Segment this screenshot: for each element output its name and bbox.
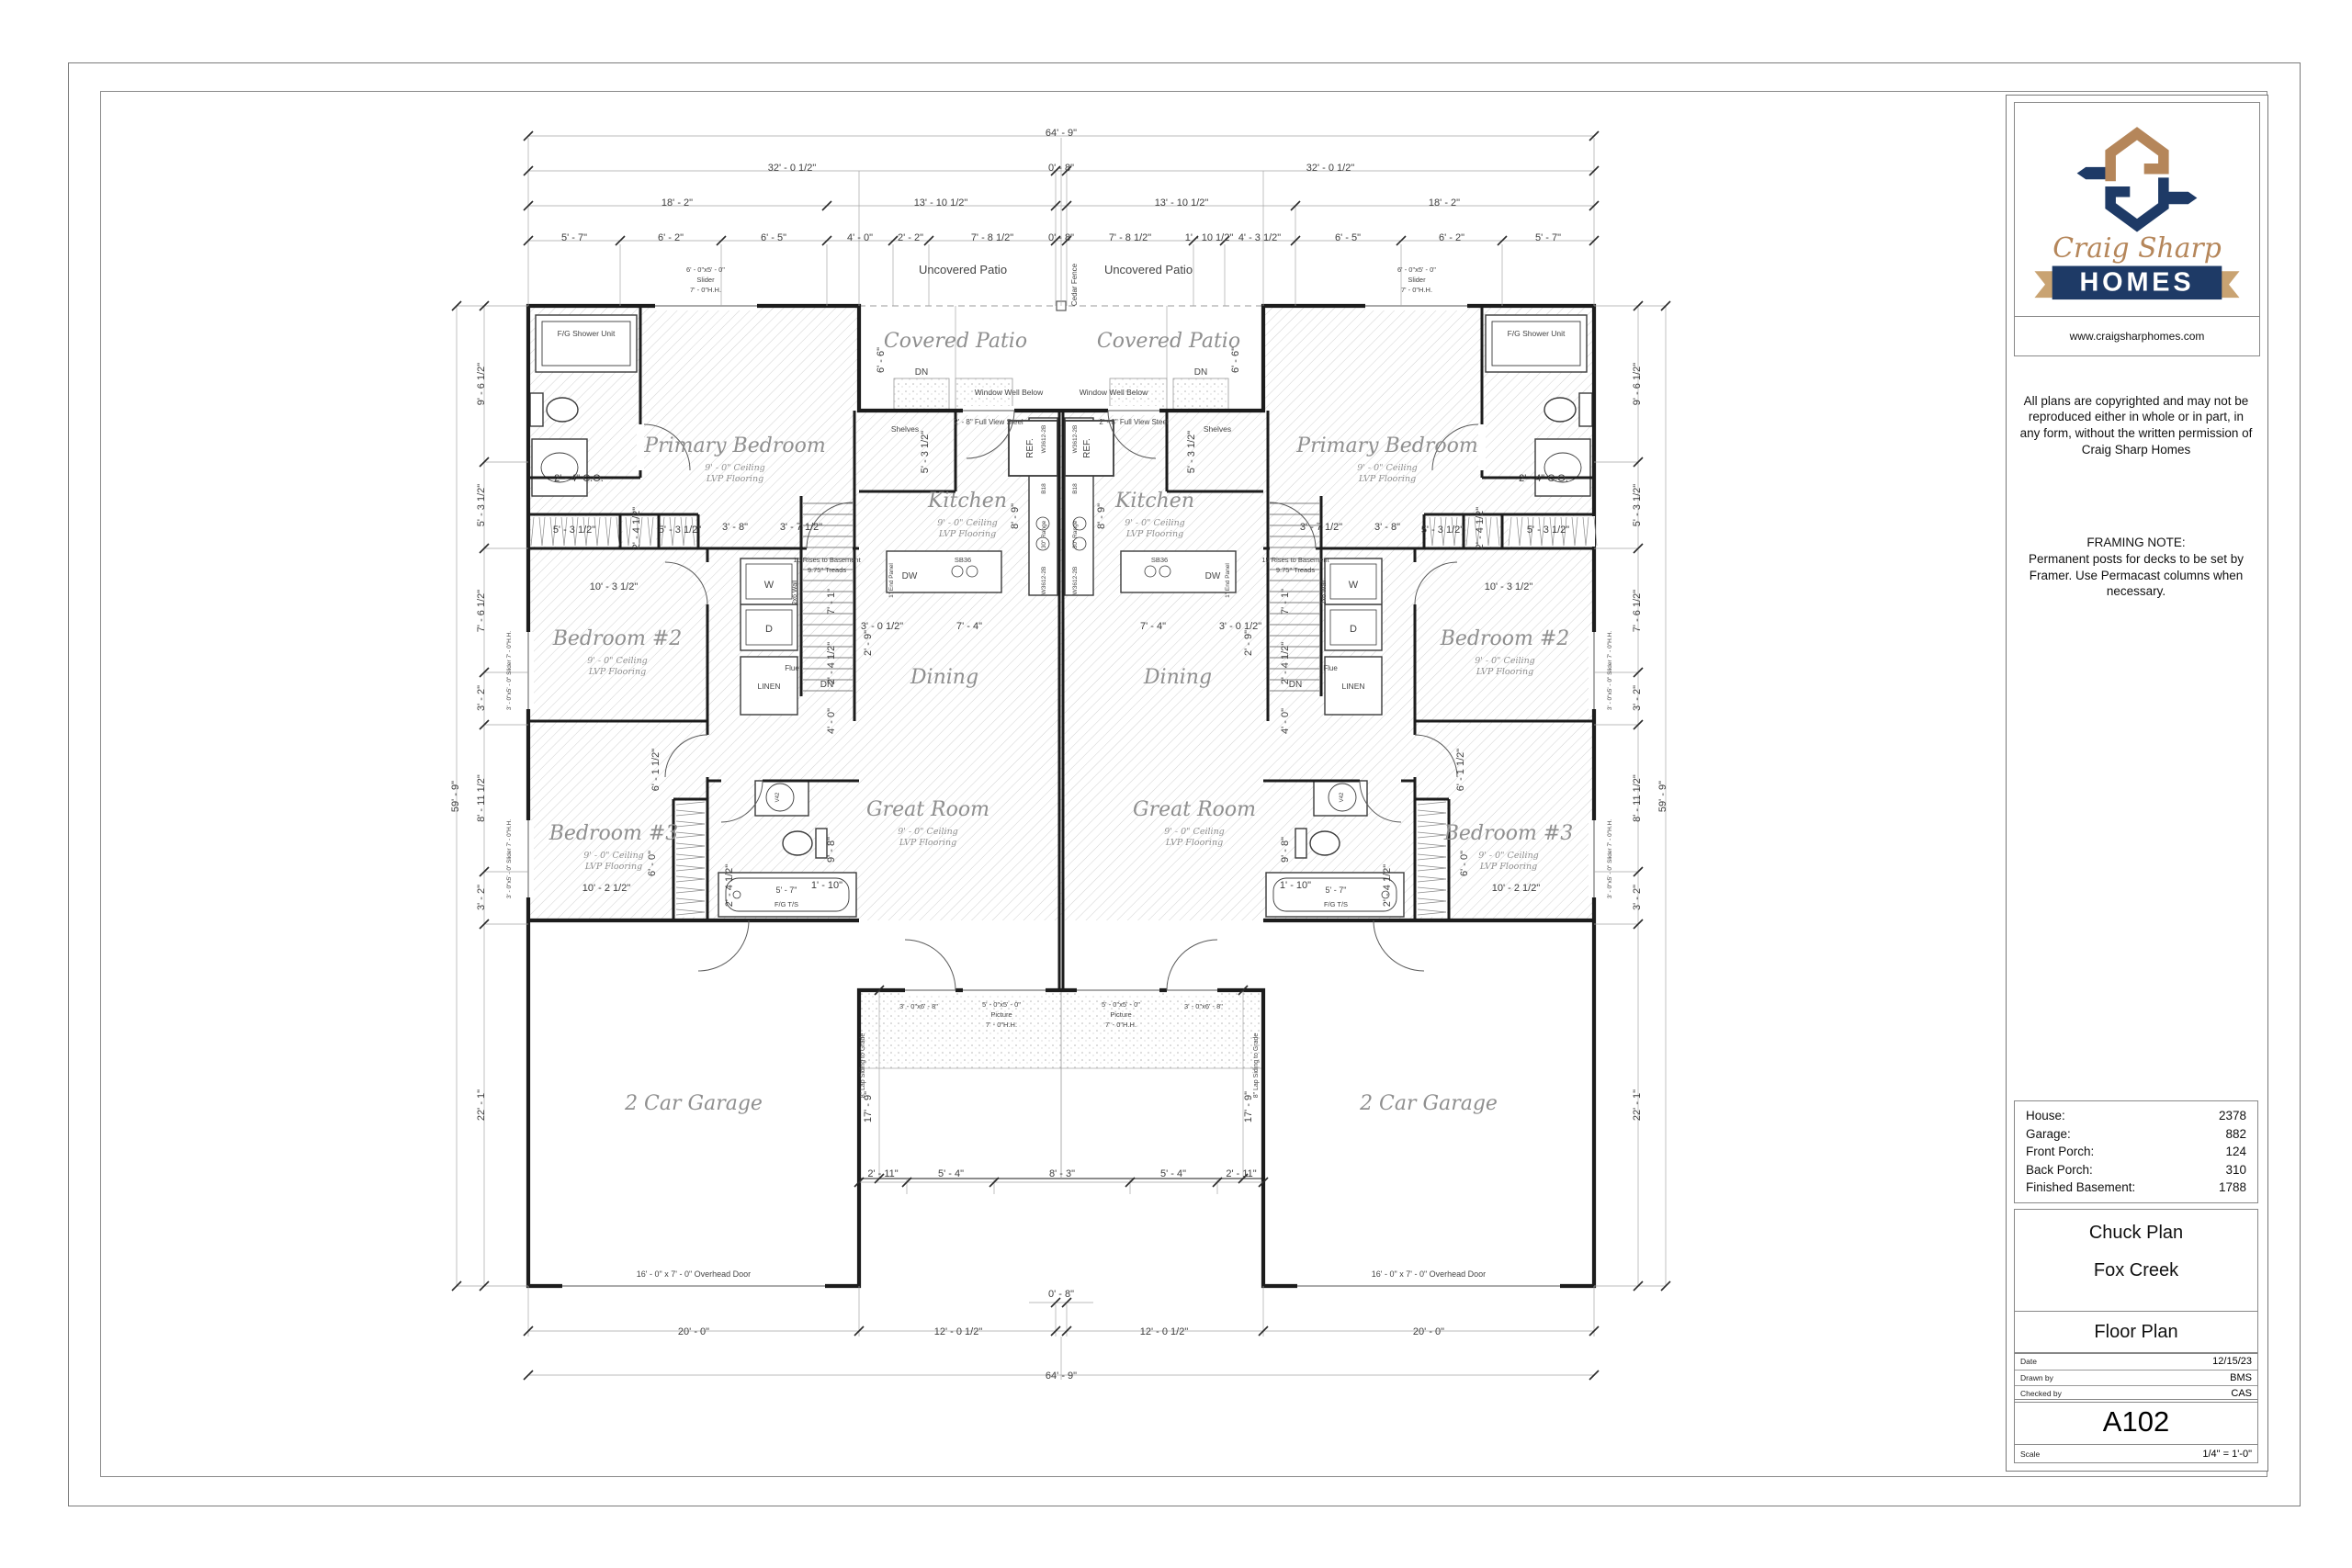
website-url: www.craigsharphomes.com: [2015, 316, 2259, 355]
room-sub-label: LVP Flooring: [588, 667, 646, 677]
room-label: 2 Car Garage: [624, 1092, 763, 1115]
note-label: LINEN: [757, 682, 780, 691]
dim-label: 7' - 1": [1280, 589, 1291, 615]
dim-label: 5' - 3 1/2": [920, 431, 931, 473]
area-label: Garage:: [2026, 1125, 2071, 1144]
note-label: 1" End Panel: [1225, 563, 1231, 598]
note-label: 8" Lap Siding to Grade: [1253, 1033, 1260, 1099]
dim-label: 4' - 3 1/2": [1238, 232, 1281, 243]
area-value: 1788: [2219, 1179, 2246, 1197]
dim-label: 3' - 7 1/2": [1300, 522, 1342, 533]
dim-label: 3' - 2": [476, 685, 487, 711]
dim-label: 1' - 10": [811, 880, 842, 891]
dim-label: 5' - 4": [1160, 1168, 1186, 1179]
note-label: 9.75" Treads: [808, 566, 847, 574]
dim-label: 8' - 9": [1096, 503, 1107, 529]
dim-label: 2' - 4 1/2": [1280, 642, 1291, 684]
dim-label: 4' - 0": [1280, 708, 1291, 734]
note-label: Cedar Fence: [1070, 263, 1079, 306]
dim-label: 2' - 4 1/2": [631, 507, 642, 549]
note-label: 2x6 Wall: [792, 580, 798, 604]
dim-label: 3' - 2": [1632, 885, 1643, 910]
logo-chevron: [2110, 177, 2164, 225]
room-sub-label: 9' - 0" Ceiling: [1475, 656, 1535, 666]
note-label: 9.75" Treads: [1276, 566, 1316, 574]
note-label: 7' - 0"H.H.: [1401, 286, 1432, 294]
dim-label: 2' - 4 1/2": [724, 864, 735, 907]
note-label: Window Well Below: [975, 388, 1044, 397]
area-value: 2378: [2219, 1107, 2246, 1125]
dim-label: 2' - 2": [898, 232, 923, 243]
note-label: 8" Lap Siding to Grade: [860, 1033, 866, 1099]
note-label: Picture: [1110, 1010, 1131, 1019]
note-label: 2x6 Wall: [1321, 580, 1328, 604]
note-label: V42: [775, 792, 781, 802]
note-label: W: [1349, 580, 1359, 591]
room-label: Covered Patio: [1097, 330, 1240, 353]
note-label: 6' - 0"x5' - 0": [686, 265, 725, 274]
dim-label: 9' - 6 1/2": [1632, 363, 1643, 405]
dim-label: 4' - 0": [826, 708, 837, 734]
dim-label: 5' - 3 1/2": [1186, 431, 1197, 473]
note-label: LINEN: [1341, 682, 1364, 691]
note-label: 5' - 7": [776, 886, 797, 895]
note-label: 5' - 7": [1326, 886, 1347, 895]
window-wells: [894, 378, 1228, 411]
note-label: F/G T/S: [775, 900, 798, 908]
dim-label: 5' - 3 1/2": [553, 525, 595, 536]
dim-label: 2' - 4 1/2": [1382, 864, 1393, 907]
room-sub-label: 9' - 0" Ceiling: [587, 656, 648, 666]
note-label: 3' - 0"x5' - 0" Slider 7' - 0"H.H.: [506, 631, 513, 710]
scale-row: Scale 1/4" = 1'-0": [2014, 1444, 2258, 1463]
note-label: DN: [915, 367, 928, 378]
dim-label: 3' - 8": [1374, 522, 1400, 533]
room-sub-label: LVP Flooring: [1165, 838, 1223, 848]
room-sub-label: LVP Flooring: [899, 838, 956, 848]
note-label: F/G Shower Unit: [558, 329, 616, 338]
meta-label: Checked by: [2020, 1389, 2062, 1398]
area-label: Finished Basement:: [2026, 1179, 2135, 1197]
note-label: DW: [1205, 571, 1221, 581]
note-label: DN: [1194, 367, 1207, 378]
room-label: Bedroom #3: [548, 822, 679, 845]
note-label: W3612-2B: [1072, 567, 1079, 595]
dim-label: 2' - 4" C.O.: [554, 473, 604, 484]
area-label: Front Porch:: [2026, 1143, 2094, 1161]
room-sub-label: 9' - 0" Ceiling: [583, 851, 644, 861]
area-value: 310: [2225, 1161, 2246, 1179]
dim-label: 3' - 2": [1632, 685, 1643, 711]
dim-label: 22' - 1": [476, 1089, 487, 1121]
note-label: 3' - 0"x6' - 8": [1184, 1002, 1223, 1010]
area-summary-table: House:2378Garage:882Front Porch:124Back …: [2014, 1100, 2258, 1203]
dim-label: 9' - 8": [826, 837, 837, 863]
scale-label: Scale: [2020, 1450, 2040, 1459]
dim-label: 2' - 9": [1243, 630, 1254, 656]
dim-label: 7' - 4": [1140, 621, 1166, 632]
note-label: Slider: [1408, 276, 1426, 284]
area-value: 124: [2225, 1143, 2246, 1161]
dim-label: 6' - 5": [1335, 232, 1361, 243]
room-label: Kitchen: [927, 490, 1007, 513]
dim-label: 6' - 0": [1459, 851, 1470, 876]
note-label: W: [764, 580, 775, 591]
scale-value: 1/4" = 1'-0": [2202, 1449, 2252, 1460]
dim-label: 7' - 6 1/2": [1632, 590, 1643, 632]
dim-label: 0' - 8": [1048, 1289, 1074, 1300]
dim-label: 2' - 4 1/2": [826, 642, 837, 684]
note-label: 6' - 0"x5' - 0": [1397, 265, 1436, 274]
note-label: Picture: [990, 1010, 1012, 1019]
note-label: Uncovered Patio: [919, 263, 1007, 276]
area-row: Garage:882: [2015, 1125, 2257, 1144]
dim-label: 7' - 8 1/2": [971, 232, 1013, 243]
note-label: 2' - 8" Full View Steel: [1099, 418, 1169, 426]
dim-label: 8' - 3": [1049, 1168, 1075, 1179]
dim-label: 6' - 1 1/2": [1455, 749, 1466, 791]
dim-label: 0' - 8": [1048, 163, 1074, 174]
area-row: Back Porch:310: [2015, 1161, 2257, 1179]
room-sub-label: LVP Flooring: [1358, 474, 1416, 484]
note-label: 7' - 0"H.H.: [690, 286, 721, 294]
dim-label: 1' - 10 1/2": [1185, 232, 1234, 243]
dim-label: 5' - 3 1/2": [659, 525, 701, 536]
room-sub-label: LVP Flooring: [1125, 529, 1183, 539]
note-label: 3' - 0"x5' - 0" Slider 7' - 0"H.H.: [1607, 631, 1613, 710]
dim-label: 6' - 5": [761, 232, 786, 243]
note-label: Flue: [1323, 664, 1338, 672]
drawing-sheet: 64' - 9"32' - 0 1/2"0' - 8"32' - 0 1/2"1…: [0, 0, 2352, 1568]
meta-value: 12/15/23: [2212, 1356, 2252, 1367]
dim-label: 32' - 0 1/2": [1306, 163, 1355, 174]
room-sub-label: 9' - 0" Ceiling: [937, 518, 998, 528]
floor-plan-drawing: 64' - 9"32' - 0 1/2"0' - 8"32' - 0 1/2"1…: [0, 0, 2352, 1568]
note-label: DN: [820, 680, 833, 690]
dim-label: 18' - 2": [661, 197, 693, 209]
dim-label: 20' - 0": [678, 1326, 709, 1337]
area-label: Back Porch:: [2026, 1161, 2093, 1179]
room-sub-label: LVP Flooring: [584, 862, 642, 872]
dim-label: 64' - 9": [1046, 1371, 1077, 1382]
craig-sharp-logo-graphic: Craig Sharp HOMES: [2022, 108, 2252, 310]
dim-label: 5' - 3 1/2": [476, 484, 487, 526]
note-label: 16' - 0" x 7' - 0" Overhead Door: [1372, 1269, 1486, 1279]
dim-label: 5' - 4": [938, 1168, 964, 1179]
framing-note-title: FRAMING NOTE:: [2086, 536, 2185, 549]
framing-note: FRAMING NOTE: Permanent posts for decks …: [2019, 535, 2253, 600]
dim-label: 12' - 0 1/2": [934, 1326, 983, 1337]
dim-label: 3' - 8": [722, 522, 748, 533]
sheet-number: A102: [2014, 1399, 2258, 1445]
note-label: B18: [1072, 483, 1079, 494]
room-label: Covered Patio: [884, 330, 1027, 353]
dim-label: 7' - 4": [956, 621, 982, 632]
plan-name: Chuck Plan: [2015, 1223, 2257, 1244]
room-label: Primary Bedroom: [643, 434, 825, 457]
area-row: House:2378: [2015, 1107, 2257, 1125]
dim-label: 20' - 0": [1413, 1326, 1444, 1337]
dim-label: 3' - 0 1/2": [1219, 621, 1261, 632]
room-label: Great Room: [866, 798, 989, 821]
note-label: W3612-2B: [1072, 425, 1079, 454]
meta-row: Date12/15/23: [2015, 1354, 2257, 1371]
note-label: 15 Rises to Basement: [793, 556, 861, 564]
banner-text: HOMES: [2080, 267, 2195, 297]
note-label: 3' - 0"x5' - 0" Slider 7' - 0"H.H.: [1607, 819, 1613, 898]
logo-script-text: Craig Sharp: [2052, 232, 2222, 265]
dim-label: 59' - 9": [1657, 781, 1668, 812]
dim-label: 32' - 0 1/2": [768, 163, 817, 174]
dim-label: 18' - 2": [1429, 197, 1460, 209]
room-sub-label: LVP Flooring: [1476, 667, 1533, 677]
note-label: Flue: [785, 664, 799, 672]
note-label: D: [765, 624, 773, 635]
note-label: Window Well Below: [1080, 388, 1148, 397]
note-label: SB36: [1151, 556, 1168, 564]
dim-label: 5' - 3 1/2": [1421, 525, 1464, 536]
dim-label: 59' - 9": [450, 781, 461, 812]
note-label: D: [1350, 624, 1357, 635]
note-label: DN: [1289, 680, 1302, 690]
sheet-title: Floor Plan: [2015, 1311, 2257, 1352]
area-value: 882: [2225, 1125, 2246, 1144]
dim-label: 6' - 2": [658, 232, 684, 243]
room-sub-label: LVP Flooring: [706, 474, 763, 484]
drawing-meta-table: Date12/15/23Drawn byBMSChecked byCAS: [2014, 1353, 2258, 1403]
plan-title-box: Chuck Plan Fox Creek Floor Plan: [2014, 1209, 2258, 1353]
room-sub-label: 9' - 0" Ceiling: [898, 827, 958, 837]
dim-label: 4' - 0": [847, 232, 873, 243]
note-label: SB36: [955, 556, 971, 564]
meta-value: CAS: [2231, 1388, 2252, 1399]
area-label: House:: [2026, 1107, 2065, 1125]
dim-label: 2' - 4" C.O.: [1519, 473, 1568, 484]
note-label: 3' - 0"x6' - 8": [899, 1002, 938, 1010]
dim-label: 2' - 4 1/2": [1475, 507, 1486, 549]
meta-label: Date: [2020, 1357, 2037, 1366]
dim-label: 13' - 10 1/2": [914, 197, 968, 209]
room-label: Bedroom #2: [552, 627, 683, 650]
dim-label: 3' - 2": [476, 885, 487, 910]
meta-label: Drawn by: [2020, 1373, 2053, 1382]
dim-label: 5' - 7": [1535, 232, 1561, 243]
note-label: V42: [1340, 792, 1345, 802]
title-block: Craig Sharp HOMES www.craigsharphomes.co…: [2006, 95, 2268, 1472]
company-logo: Craig Sharp HOMES: [2015, 103, 2259, 316]
copyright-note: All plans are copyrighted and may not be…: [2019, 393, 2253, 458]
dim-label: 1' - 10": [1280, 880, 1311, 891]
dim-label: 7' - 8 1/2": [1109, 232, 1151, 243]
dim-label: 6' - 1 1/2": [650, 749, 661, 791]
note-label: 30" Range: [1041, 520, 1047, 548]
room-sub-label: LVP Flooring: [1479, 862, 1537, 872]
dim-label: 7' - 1": [826, 589, 837, 615]
dim-label: 3' - 7 1/2": [780, 522, 822, 533]
note-label: 30" Range: [1072, 520, 1079, 548]
note-label: REF.: [1025, 438, 1035, 458]
note-label: F/G Shower Unit: [1508, 329, 1566, 338]
note-label: Shelves: [1204, 424, 1231, 434]
dim-label: 2' - 11": [867, 1168, 898, 1179]
dim-label: 9' - 6 1/2": [476, 363, 487, 405]
dim-label: 13' - 10 1/2": [1155, 197, 1209, 209]
note-label: 3' - 0"x5' - 0" Slider 7' - 0"H.H.: [506, 819, 513, 898]
subdivision-name: Fox Creek: [2015, 1260, 2257, 1281]
note-label: Slider: [696, 276, 715, 284]
dim-label: 22' - 1": [1632, 1089, 1643, 1121]
dim-label: 6' - 2": [1439, 232, 1464, 243]
dim-label: 5' - 7": [561, 232, 587, 243]
note-label: W3612-2B: [1041, 567, 1047, 595]
framing-note-body: Permanent posts for decks to be set by F…: [2029, 552, 2244, 599]
room-label: Dining: [910, 666, 978, 689]
note-label: 7' - 0"H.H.: [1105, 1021, 1136, 1029]
note-label: F/G T/S: [1324, 900, 1348, 908]
dim-label: 2' - 11": [1226, 1168, 1256, 1179]
note-label: Uncovered Patio: [1104, 263, 1193, 276]
dim-label: 0' - 8": [1048, 232, 1074, 243]
room-sub-label: 9' - 0" Ceiling: [1125, 518, 1185, 528]
note-label: DW: [902, 571, 918, 581]
room-label: Primary Bedroom: [1295, 434, 1477, 457]
room-sub-label: 9' - 0" Ceiling: [1478, 851, 1539, 861]
room-label: Bedroom #2: [1440, 627, 1570, 650]
note-label: W3612-2B: [1041, 425, 1047, 454]
dim-label: 7' - 6 1/2": [476, 590, 487, 632]
note-label: 1" End Panel: [888, 563, 895, 598]
room-sub-label: 9' - 0" Ceiling: [1357, 463, 1418, 473]
note-label: 15 Rises to Basement: [1261, 556, 1329, 564]
dim-label: 8' - 11 1/2": [1632, 774, 1643, 822]
dim-label: 12' - 0 1/2": [1140, 1326, 1189, 1337]
dim-label: 2' - 9": [863, 630, 874, 656]
meta-value: BMS: [2230, 1372, 2252, 1383]
note-label: Shelves: [891, 424, 919, 434]
dim-label: 10' - 3 1/2": [1485, 581, 1533, 592]
dim-label: 9' - 8": [1280, 837, 1291, 863]
dim-label: 64' - 9": [1046, 128, 1077, 139]
room-label: 2 Car Garage: [1359, 1092, 1498, 1115]
dim-label: 10' - 2 1/2": [582, 883, 631, 894]
dim-label: 5' - 3 1/2": [1632, 484, 1643, 526]
room-label: Dining: [1143, 666, 1212, 689]
dim-label: 5' - 3 1/2": [1527, 525, 1569, 536]
note-label: 16' - 0" x 7' - 0" Overhead Door: [637, 1269, 751, 1279]
logo-box: Craig Sharp HOMES www.craigsharphomes.co…: [2014, 102, 2260, 356]
note-label: 7' - 0"H.H.: [986, 1021, 1017, 1029]
dim-label: 6' - 0": [647, 851, 658, 876]
room-label: Kitchen: [1114, 490, 1194, 513]
dim-label: 8' - 11 1/2": [476, 774, 487, 822]
room-label: Great Room: [1133, 798, 1256, 821]
area-row: Front Porch:124: [2015, 1143, 2257, 1161]
dim-label: 8' - 9": [1010, 503, 1021, 529]
note-label: 5' - 0"x5' - 0": [982, 1000, 1021, 1009]
logo-house-outline: [2110, 133, 2164, 181]
note-label: 2' - 8" Full View Steel: [954, 418, 1023, 426]
meta-row: Drawn byBMS: [2015, 1371, 2257, 1387]
dim-label: 10' - 3 1/2": [590, 581, 639, 592]
room-label: Bedroom #3: [1443, 822, 1574, 845]
dim-label: 10' - 2 1/2": [1492, 883, 1541, 894]
note-label: 5' - 0"x5' - 0": [1102, 1000, 1140, 1009]
room-sub-label: LVP Flooring: [938, 529, 996, 539]
note-label: B18: [1041, 483, 1047, 494]
area-row: Finished Basement:1788: [2015, 1179, 2257, 1197]
room-sub-label: 9' - 0" Ceiling: [705, 463, 765, 473]
note-label: REF.: [1082, 438, 1092, 458]
room-sub-label: 9' - 0" Ceiling: [1164, 827, 1225, 837]
